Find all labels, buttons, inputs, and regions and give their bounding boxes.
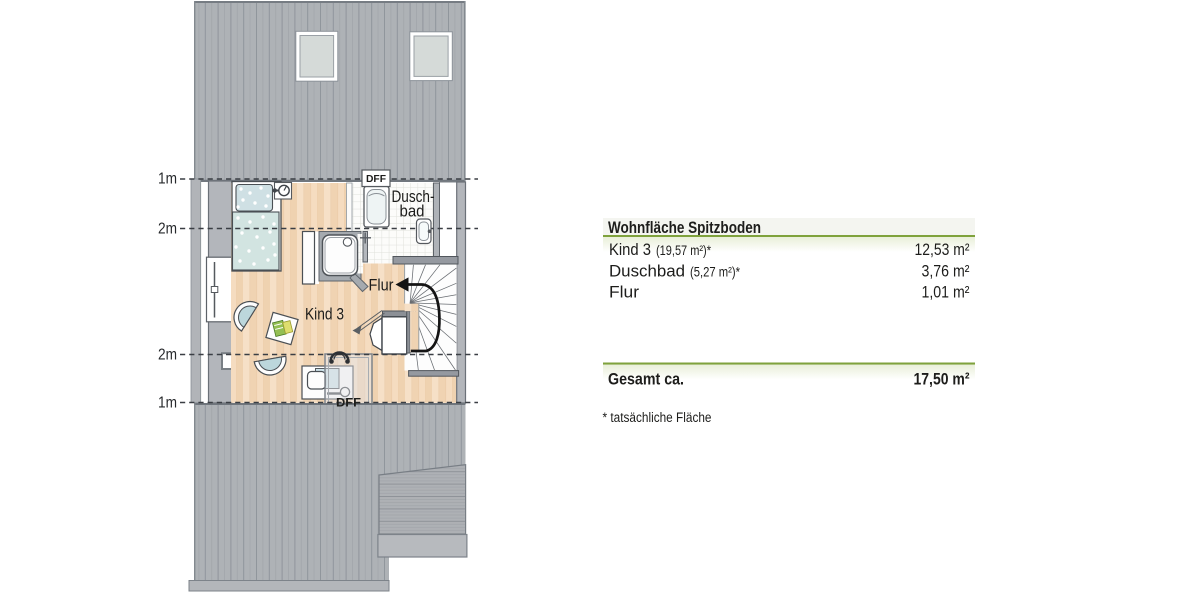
svg-text:Flur: Flur xyxy=(609,283,639,302)
svg-text:3,76 m²: 3,76 m² xyxy=(922,262,970,281)
svg-text:Gesamt ca.: Gesamt ca. xyxy=(608,370,684,389)
svg-text:1,01 m²: 1,01 m² xyxy=(922,283,970,302)
svg-text:Kind 3: Kind 3 xyxy=(305,305,344,324)
svg-text:(19,57 m²)*: (19,57 m²)* xyxy=(656,243,712,258)
svg-text:2m: 2m xyxy=(158,347,177,364)
svg-text:1m: 1m xyxy=(158,395,177,412)
svg-text:12,53 m²: 12,53 m² xyxy=(915,240,970,259)
svg-text:Wohnfläche Spitzboden: Wohnfläche Spitzboden xyxy=(608,218,761,237)
svg-text:Duschbad: Duschbad xyxy=(609,262,685,281)
svg-text:* tatsächliche Fläche: * tatsächliche Fläche xyxy=(603,410,712,425)
svg-text:DFF: DFF xyxy=(366,174,386,185)
svg-text:bad: bad xyxy=(400,203,425,221)
svg-text:Flur: Flur xyxy=(369,277,394,295)
svg-text:2m: 2m xyxy=(158,221,177,238)
svg-text:1m: 1m xyxy=(158,171,177,188)
svg-text:(5,27 m²)*: (5,27 m²)* xyxy=(690,265,741,280)
svg-text:Kind 3: Kind 3 xyxy=(609,240,651,259)
svg-text:17,50 m²: 17,50 m² xyxy=(914,370,970,389)
svg-text:DFF: DFF xyxy=(336,396,361,410)
